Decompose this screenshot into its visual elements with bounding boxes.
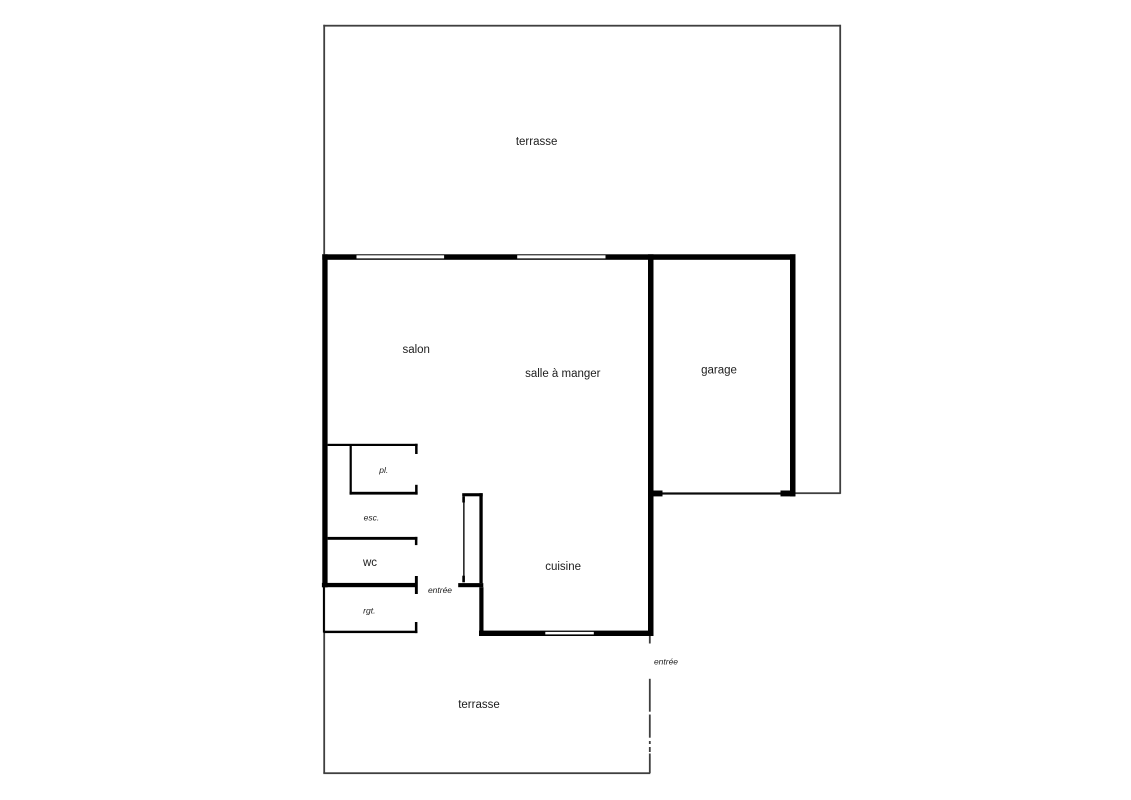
svg-text:garage: garage — [701, 365, 737, 377]
svg-text:entrée: entrée — [654, 656, 678, 666]
svg-text:salle à manger: salle à manger — [525, 368, 601, 380]
svg-text:pl.: pl. — [378, 465, 388, 475]
svg-text:esc.: esc. — [364, 512, 380, 522]
svg-text:salon: salon — [402, 344, 430, 356]
svg-text:terrasse: terrasse — [458, 699, 500, 711]
svg-text:wc: wc — [362, 557, 377, 569]
svg-text:entrée: entrée — [428, 585, 452, 595]
svg-text:terrasse: terrasse — [516, 136, 558, 148]
svg-text:cuisine: cuisine — [545, 561, 581, 573]
svg-text:rgt.: rgt. — [363, 606, 375, 616]
